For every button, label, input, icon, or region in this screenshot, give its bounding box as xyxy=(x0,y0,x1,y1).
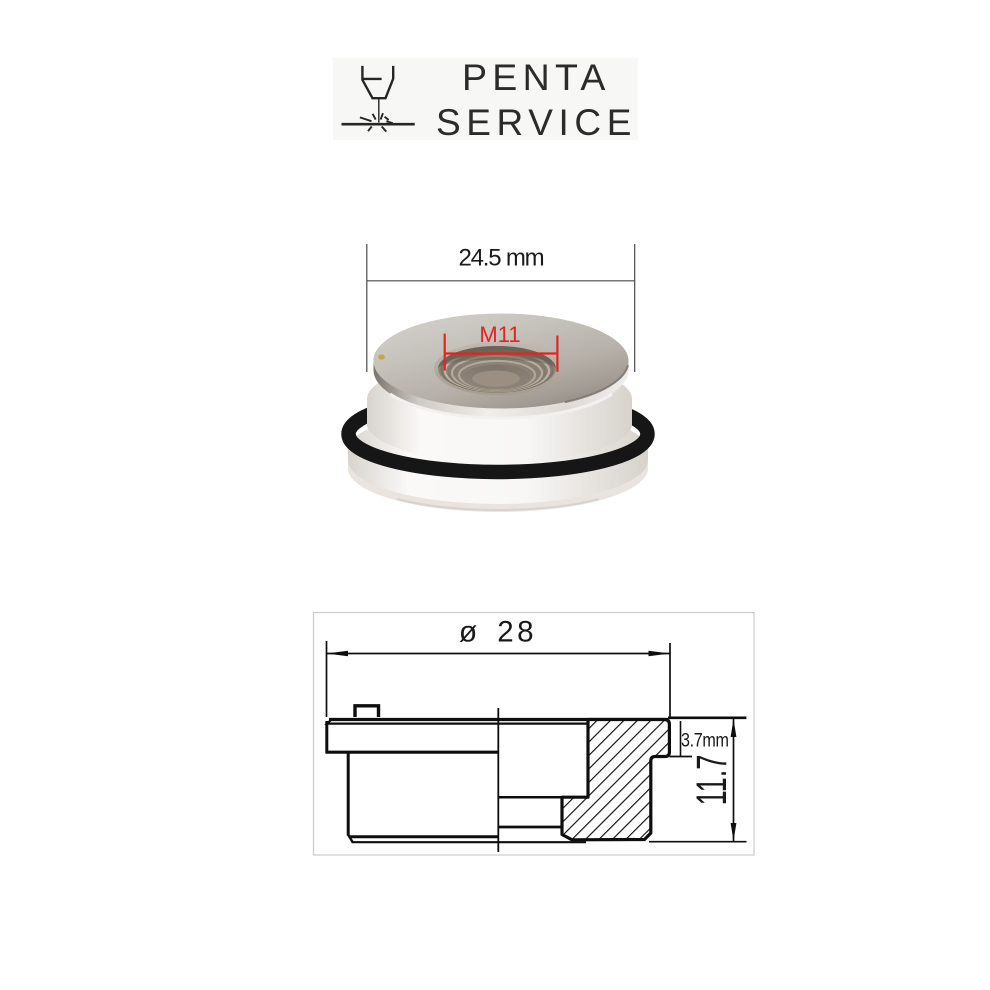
svg-text:3.7mm: 3.7mm xyxy=(681,729,729,751)
svg-text:ø28: ø28 xyxy=(459,616,537,649)
svg-text:11.7: 11.7 xyxy=(688,755,736,806)
